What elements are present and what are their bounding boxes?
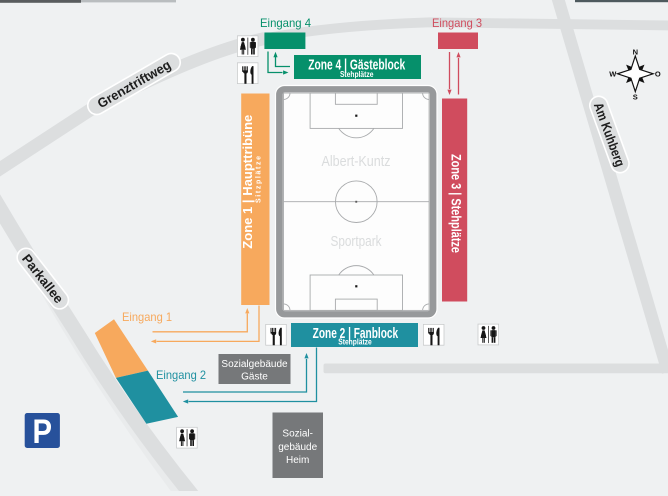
svg-text:Eingang 4: Eingang 4 bbox=[260, 16, 311, 30]
svg-text:Zone 1 | Haupttribüne: Zone 1 | Haupttribüne bbox=[240, 115, 255, 249]
svg-text:Zone 3 | Stehplätze: Zone 3 | Stehplätze bbox=[449, 154, 465, 253]
svg-text:N: N bbox=[633, 47, 638, 56]
svg-text:Stehplätze: Stehplätze bbox=[340, 70, 374, 79]
svg-text:Eingang 1: Eingang 1 bbox=[122, 310, 172, 324]
svg-text:Sportpark: Sportpark bbox=[331, 233, 382, 250]
svg-text:Eingang 2: Eingang 2 bbox=[156, 368, 206, 382]
svg-text:gebäude: gebäude bbox=[278, 442, 317, 453]
svg-text:Sozialgebäude: Sozialgebäude bbox=[221, 359, 288, 370]
svg-text:Heim: Heim bbox=[286, 455, 309, 466]
svg-text:O: O bbox=[655, 70, 661, 79]
svg-text:Sozial-: Sozial- bbox=[282, 429, 313, 440]
svg-text:S: S bbox=[633, 92, 638, 101]
svg-text:Stehplätze: Stehplätze bbox=[338, 338, 372, 347]
svg-text:Albert-Kuntz: Albert-Kuntz bbox=[322, 153, 391, 170]
svg-text:Gäste: Gäste bbox=[241, 371, 268, 382]
svg-text:P: P bbox=[33, 413, 53, 451]
svg-text:W: W bbox=[609, 70, 617, 79]
svg-text:Eingang 3: Eingang 3 bbox=[432, 16, 482, 30]
